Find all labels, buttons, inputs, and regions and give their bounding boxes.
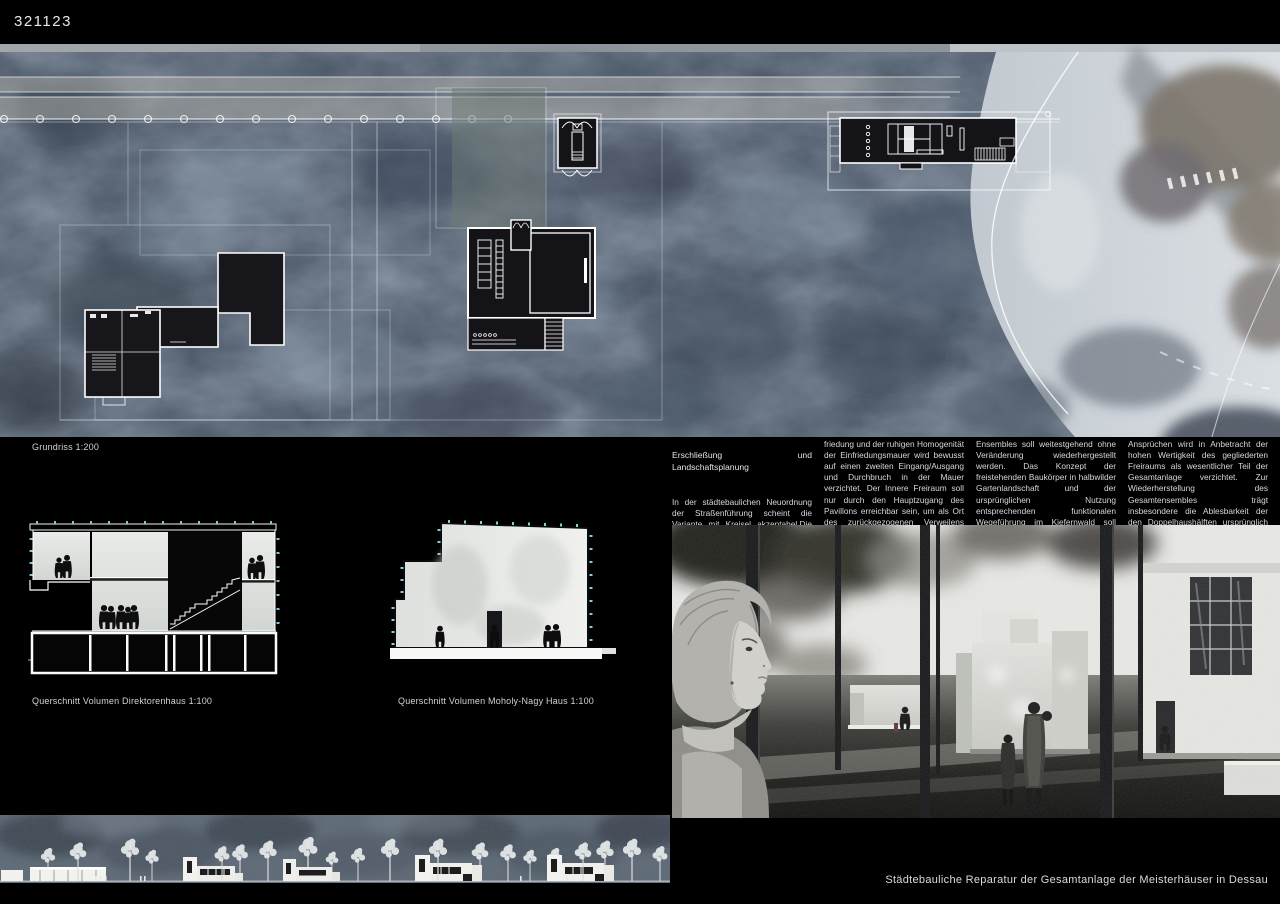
garden-patch bbox=[452, 88, 545, 228]
section-a-basement bbox=[32, 633, 276, 673]
section-a-stair-bay bbox=[168, 532, 242, 631]
text-heading: Erschließung und Landschaftsplanung bbox=[672, 450, 812, 473]
building-kiosk bbox=[554, 114, 601, 176]
section-b-ground bbox=[390, 648, 602, 659]
elevation-pavilion bbox=[30, 867, 106, 881]
entry-code: 321123 bbox=[14, 13, 72, 30]
plan-content bbox=[0, 44, 1280, 437]
panel-caption: Städtebauliche Reparatur der Gesamtanlag… bbox=[885, 874, 1268, 886]
section-moholy-nagy bbox=[390, 515, 630, 665]
street-elevation bbox=[0, 815, 670, 904]
section-a-label: Querschnitt Volumen Direktorenhaus 1:100 bbox=[32, 696, 212, 706]
site-plan-label: Grundriss 1:200 bbox=[32, 442, 99, 452]
section-direktorenhaus bbox=[28, 518, 332, 680]
section-b-label: Querschnitt Volumen Moholy-Nagy Haus 1:1… bbox=[398, 696, 594, 706]
photomontage-perspective bbox=[672, 525, 1280, 818]
competition-board: 321123 bbox=[0, 0, 1280, 904]
site-plan-drawing bbox=[0, 44, 1280, 437]
